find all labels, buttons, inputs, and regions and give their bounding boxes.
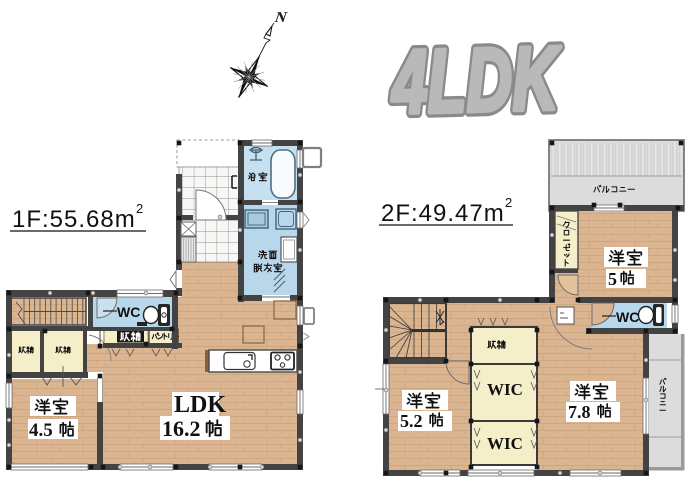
svg-text:4.5: 4.5: [29, 420, 53, 441]
svg-text:16.2: 16.2: [162, 416, 201, 441]
svg-text:WC: WC: [117, 304, 140, 320]
svg-text:5: 5: [608, 269, 617, 289]
svg-text:WC: WC: [616, 309, 639, 325]
svg-text:5.2: 5.2: [400, 411, 423, 431]
svg-text:2: 2: [136, 201, 143, 216]
svg-text:1F:55.68m: 1F:55.68m: [12, 206, 136, 233]
svg-text:2: 2: [505, 195, 512, 210]
svg-text:2F:49.47m: 2F:49.47m: [381, 200, 505, 227]
svg-text:WIC: WIC: [487, 434, 523, 453]
svg-text:4LDK: 4LDK: [389, 29, 563, 133]
svg-text:WIC: WIC: [487, 380, 523, 399]
svg-text:LDK: LDK: [174, 392, 226, 418]
svg-text:7.8: 7.8: [568, 402, 591, 422]
